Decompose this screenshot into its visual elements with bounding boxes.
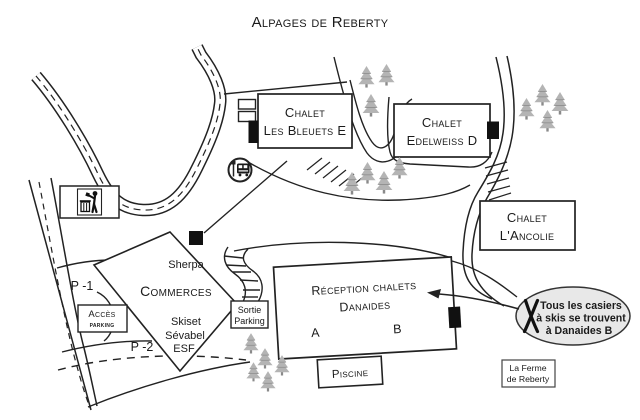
acces-parking-label1: Accès — [88, 309, 115, 320]
chalet-bleuets-label2: Les Bleuets E — [264, 123, 347, 138]
fir-tree-icon — [358, 66, 374, 88]
chalet-ancolie-label2: L'Ancolie — [500, 228, 555, 243]
chalet-bleuets-building — [258, 94, 352, 148]
callout-line1: Tous les casiers — [540, 300, 622, 312]
danaides-unit-b: B — [393, 322, 402, 336]
chalet-ancolie-label1: Chalet — [507, 210, 547, 225]
commerces-building — [94, 232, 237, 371]
commerces-title: Commerces — [140, 283, 212, 299]
fir-tree-icon — [359, 162, 375, 184]
commerces-shop-sevabel: Sévabel — [165, 330, 205, 342]
bus-stop-icon — [229, 159, 252, 182]
chalet-edelweiss-label2: Edelweiss D — [407, 133, 478, 148]
commerces-shop-esf: ESF — [173, 343, 195, 355]
commerces-entrance-marker — [189, 231, 203, 245]
sortie-parking-label1: Sortie — [238, 305, 262, 315]
commerces-shop-skiset: Skiset — [171, 316, 201, 328]
trash-disposal-icon — [60, 186, 119, 218]
fir-tree-icon — [391, 157, 407, 179]
chalet-edelweiss-building — [394, 104, 490, 157]
fir-tree-icon — [552, 92, 569, 115]
acces-parking-label2: parking — [90, 320, 115, 329]
stairs-path — [224, 247, 262, 302]
callout-line2: à skis se trouvent — [536, 313, 626, 325]
piscine-label: Piscine — [332, 367, 369, 381]
page-title: Alpages de Reberty — [252, 14, 389, 31]
sortie-parking-label2: Parking — [234, 316, 265, 326]
fir-tree-icon — [518, 98, 534, 120]
chalet-edelweiss-label1: Chalet — [422, 115, 462, 130]
bleuets-annex-lower — [239, 112, 256, 122]
ferme-label2: de Reberty — [507, 374, 550, 384]
danaides-unit-a: A — [311, 326, 321, 340]
fir-tree-icon — [363, 94, 380, 117]
parking-level-2-label: P -2 — [131, 340, 154, 354]
bleuets-annex-upper — [239, 100, 256, 110]
fir-tree-icon — [539, 110, 555, 132]
ski-lockers-callout: Tous les casiers à skis se trouvent à Da… — [516, 287, 630, 345]
chalet-bleuets-label1: Chalet — [285, 105, 325, 120]
fir-tree-icon — [257, 348, 272, 368]
tree-cluster-right — [518, 84, 568, 132]
tree-cluster-top — [358, 64, 394, 117]
ferme-label1: La Ferme — [509, 363, 546, 373]
road-right — [463, 56, 514, 306]
bleuets-entrance-marker — [249, 121, 259, 144]
edelweiss-entrance-marker — [487, 122, 499, 140]
fir-tree-icon — [344, 172, 361, 195]
fir-tree-icon — [378, 64, 394, 86]
fir-tree-icon — [376, 171, 393, 194]
fir-tree-icon — [534, 84, 550, 106]
parking-level-1-label: P -1 — [71, 279, 94, 293]
fir-tree-icon — [243, 333, 258, 353]
reception-label2: Danaides — [339, 298, 391, 315]
fir-tree-icon — [260, 371, 275, 391]
commerces-shop-sherpa: Sherpa — [168, 259, 204, 271]
tree-cluster-center — [344, 157, 408, 195]
callout-line3: à Danaides B — [546, 325, 613, 337]
danaides-entrance-marker — [448, 307, 461, 329]
site-map: Tous les casiers à skis se trouvent à Da… — [0, 0, 640, 420]
